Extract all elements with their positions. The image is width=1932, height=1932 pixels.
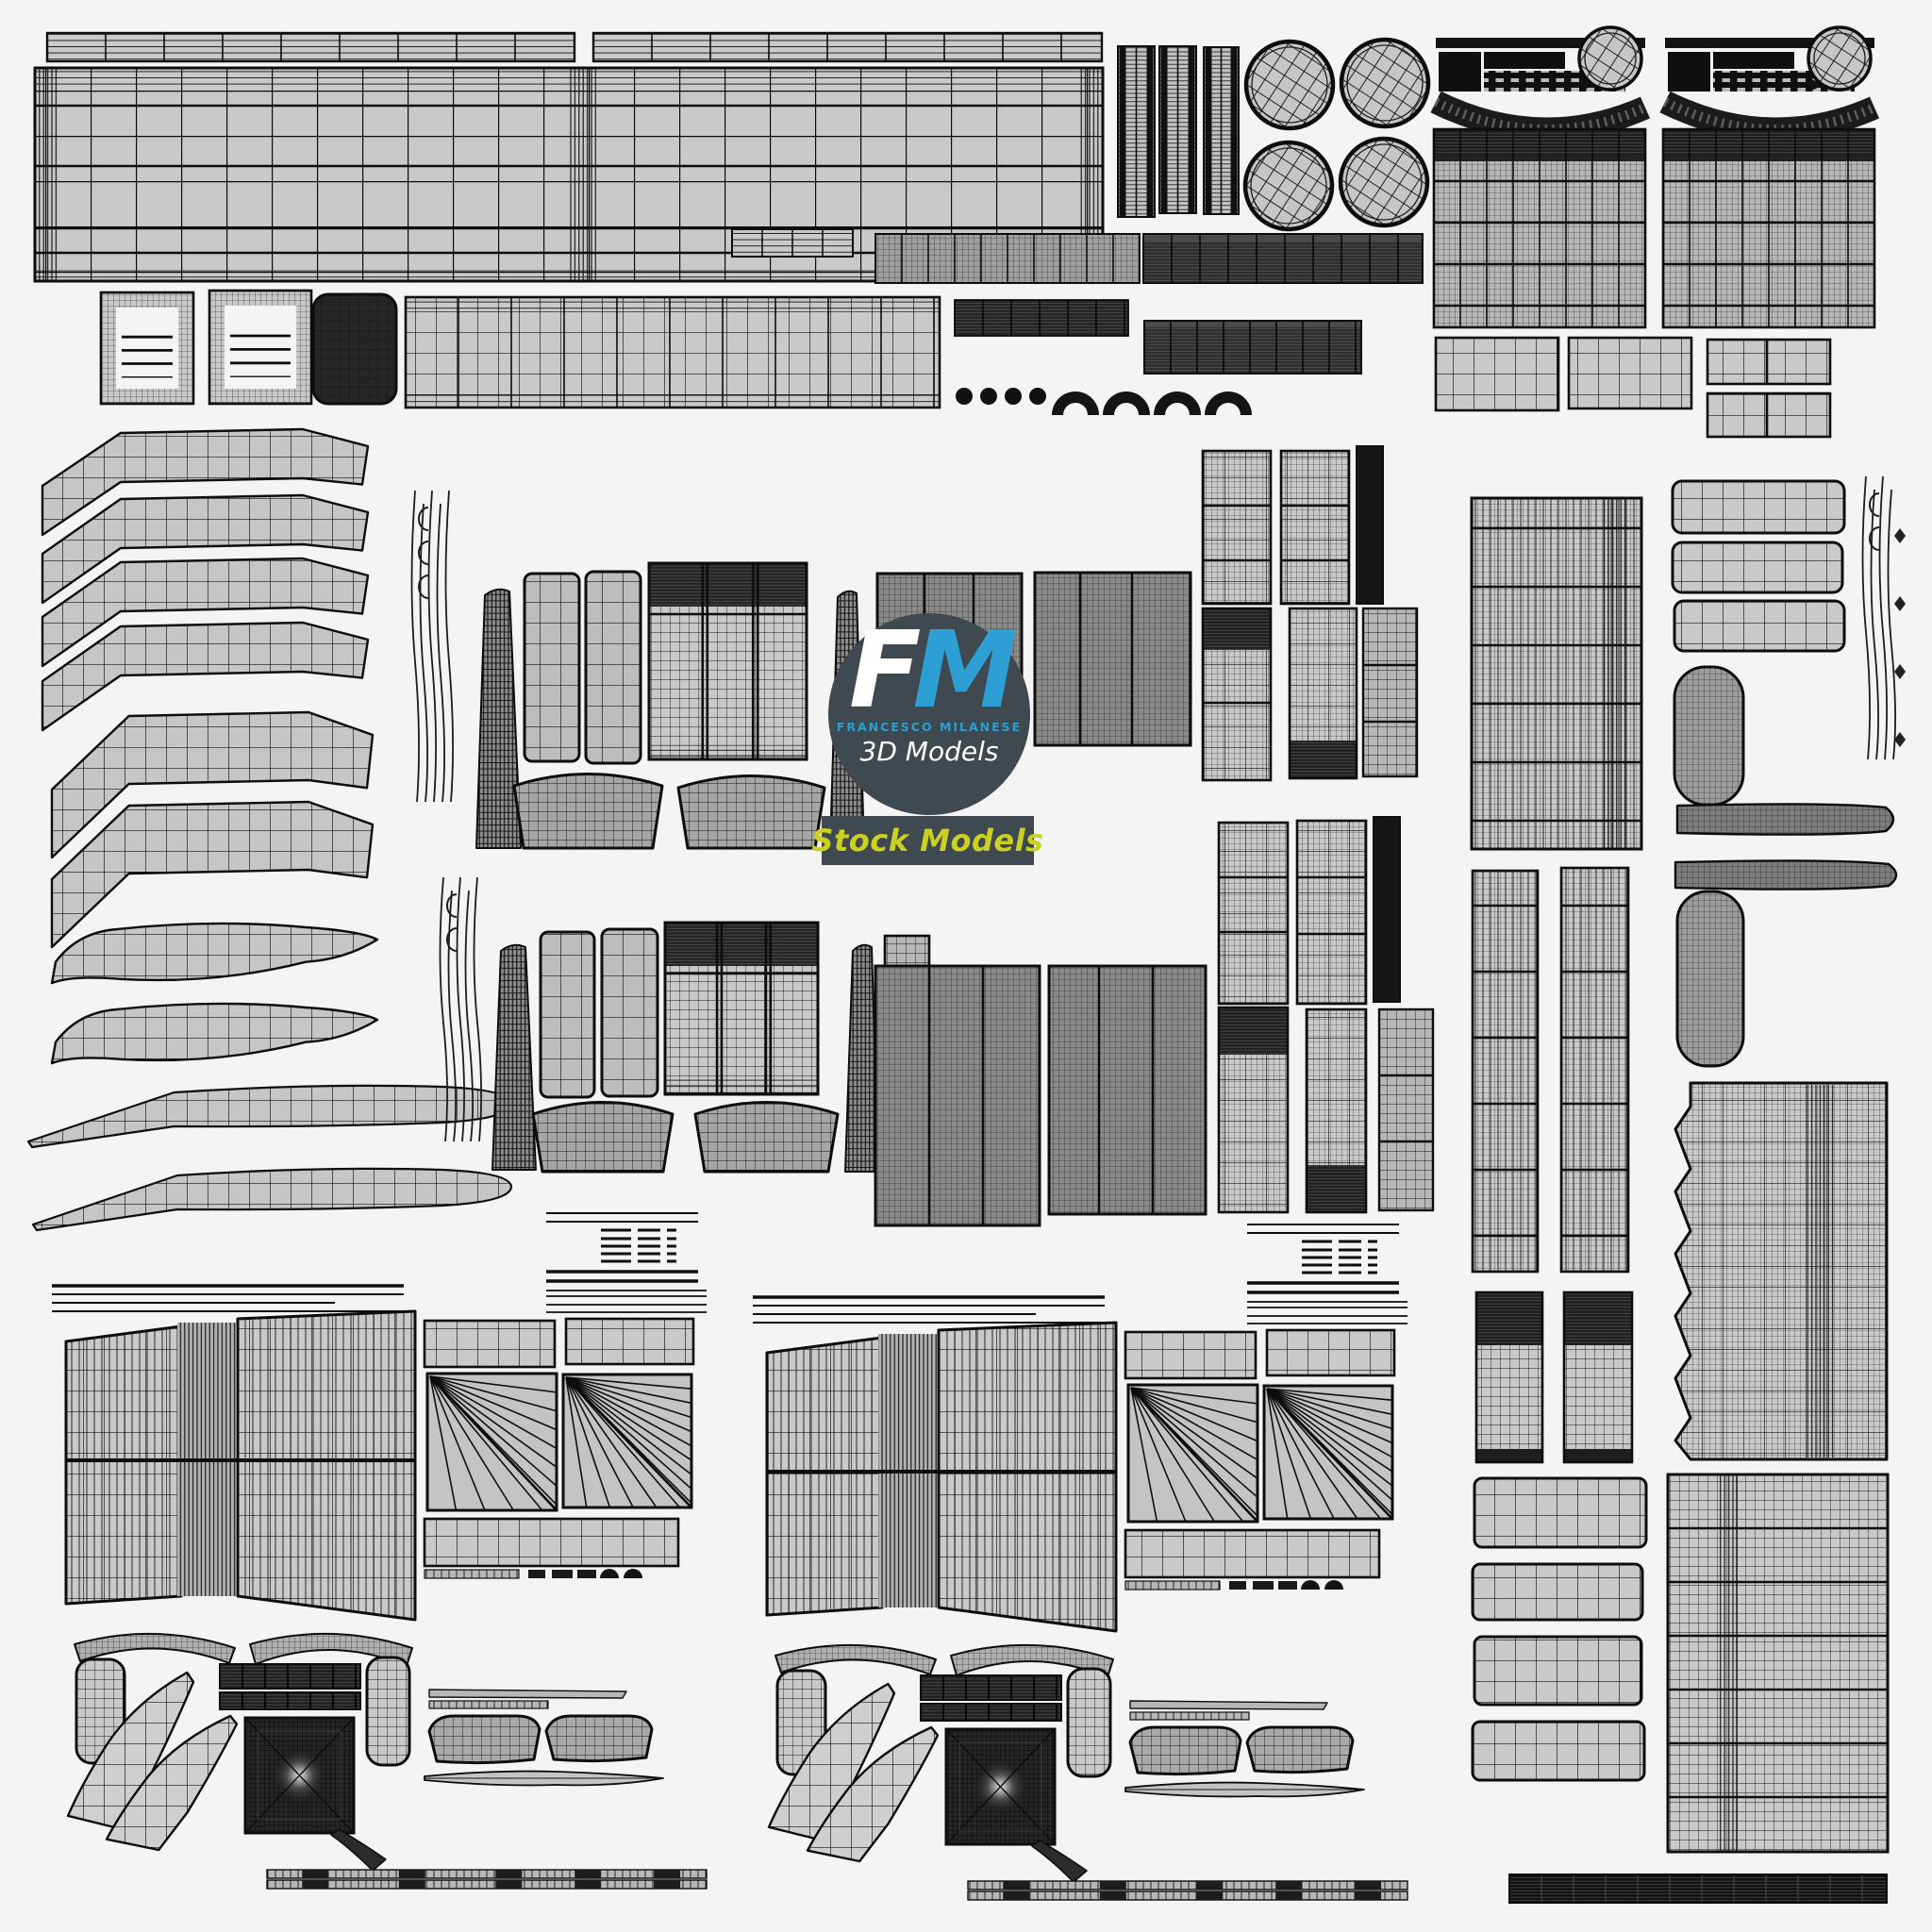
watermark-badge: Stock Models: [822, 816, 1034, 865]
watermark-badge-label: Stock Models: [811, 823, 1043, 858]
watermark-initial-f: F: [849, 623, 913, 720]
striped-columns: [1118, 46, 1239, 217]
watermark-circle: F M FRANCESCO MILANESE 3D Models: [828, 613, 1030, 815]
watermark-initials: F M: [849, 623, 1009, 720]
tr-cluster-1: [1434, 27, 1645, 327]
mudflaps: [1673, 481, 1844, 651]
watermark-tagline: 3D Models: [860, 736, 999, 767]
uv-atlas-page: F M FRANCESCO MILANESE 3D Models Stock M…: [0, 0, 1932, 1932]
bottom-right-panel: [1668, 1474, 1888, 1852]
bottom-black-bar: [1509, 1874, 1887, 1903]
watermark-initial-m: M: [913, 623, 1009, 720]
zigzag-panel: [1675, 1083, 1887, 1459]
watermark-subtitle: FRANCESCO MILANESE: [837, 720, 1022, 734]
uv-wireframe-atlas: [0, 0, 1932, 1932]
tr-cluster-2: [1663, 27, 1874, 327]
